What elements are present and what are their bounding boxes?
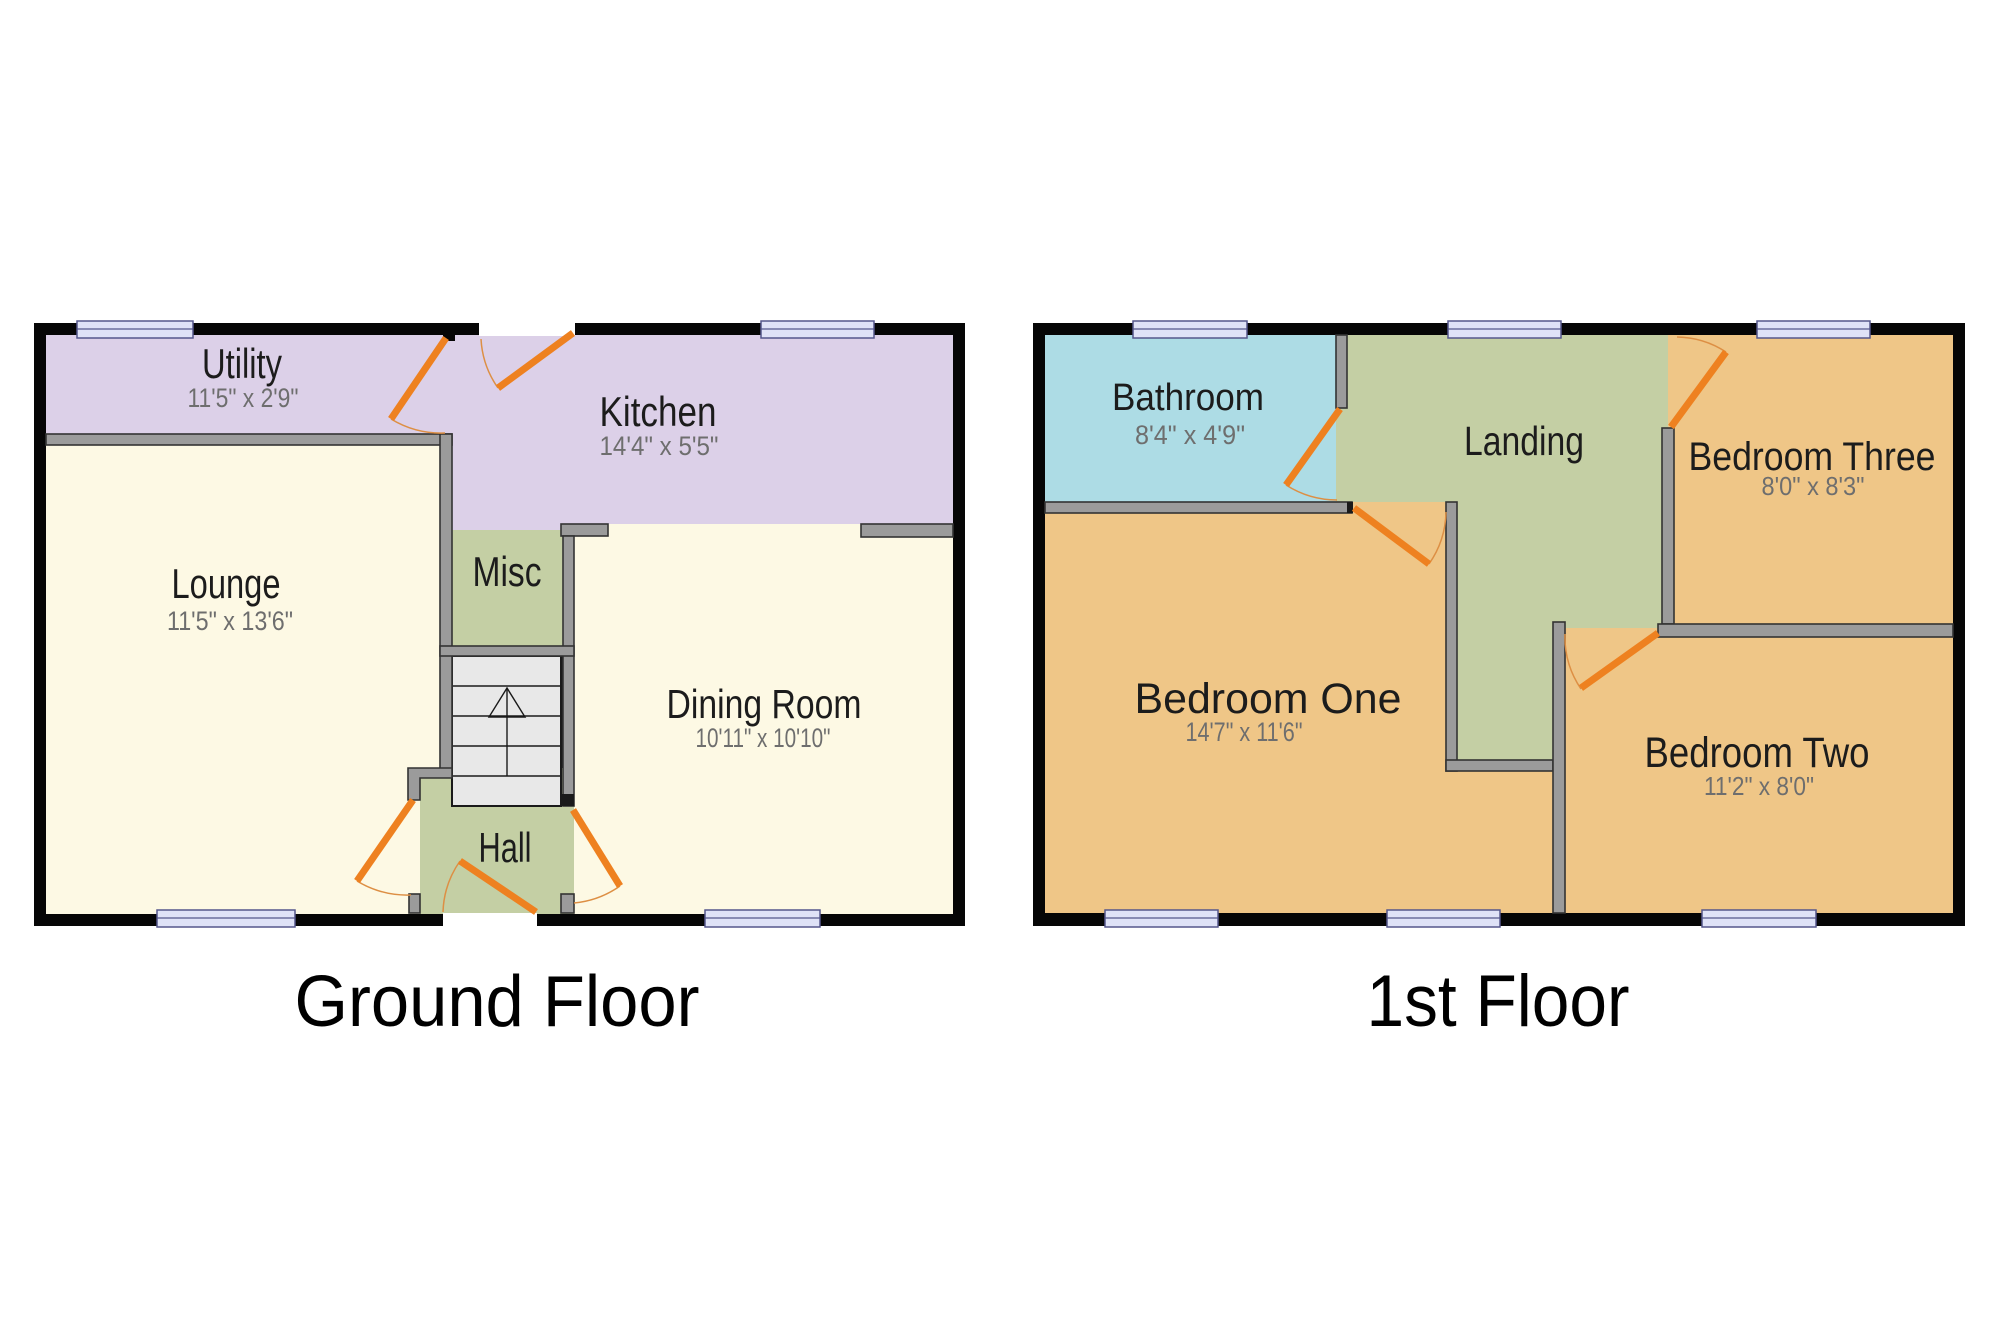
svg-text:Utility: Utility bbox=[202, 340, 282, 387]
svg-text:Ground Floor: Ground Floor bbox=[295, 962, 700, 1042]
svg-text:1st Floor: 1st Floor bbox=[1367, 961, 1630, 1042]
svg-text:11'5" x 2'9": 11'5" x 2'9" bbox=[188, 383, 299, 413]
svg-text:Lounge: Lounge bbox=[172, 560, 281, 607]
svg-text:Hall: Hall bbox=[479, 824, 532, 871]
svg-text:8'0" x 8'3": 8'0" x 8'3" bbox=[1762, 471, 1865, 501]
svg-text:Kitchen: Kitchen bbox=[600, 388, 717, 435]
svg-text:14'7" x 11'6": 14'7" x 11'6" bbox=[1186, 717, 1303, 747]
svg-text:11'5" x 13'6": 11'5" x 13'6" bbox=[167, 606, 293, 636]
svg-text:Misc: Misc bbox=[473, 548, 542, 595]
svg-text:14'4" x 5'5": 14'4" x 5'5" bbox=[600, 431, 719, 461]
svg-text:Bathroom: Bathroom bbox=[1112, 377, 1264, 419]
svg-text:8'4" x 4'9": 8'4" x 4'9" bbox=[1135, 420, 1245, 450]
svg-text:Landing: Landing bbox=[1464, 418, 1584, 464]
svg-text:Bedroom One: Bedroom One bbox=[1135, 675, 1402, 723]
svg-text:Dining Room: Dining Room bbox=[667, 681, 862, 727]
svg-text:10'11" x 10'10": 10'11" x 10'10" bbox=[696, 723, 831, 753]
svg-text:11'2" x 8'0": 11'2" x 8'0" bbox=[1704, 771, 1814, 801]
svg-text:Bedroom Two: Bedroom Two bbox=[1645, 729, 1870, 777]
